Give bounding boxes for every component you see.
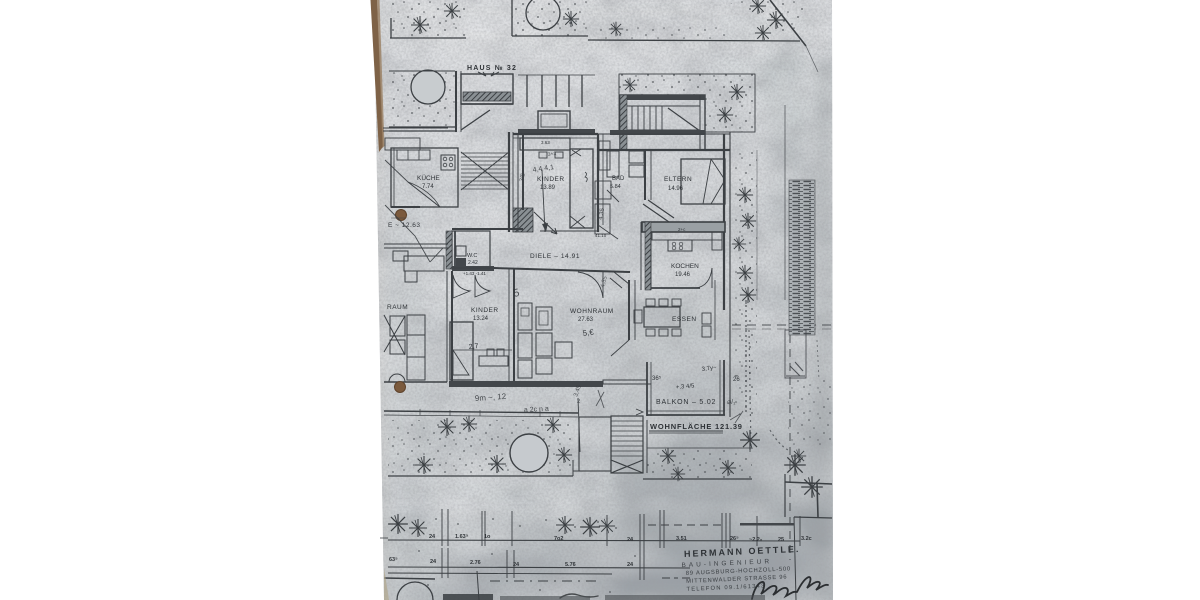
svg-text:BAD: BAD <box>612 176 625 182</box>
svg-text:ESSEN: ESSEN <box>672 316 697 323</box>
svg-text:24: 24 <box>429 534 436 540</box>
svg-text:KINDER: KINDER <box>471 307 499 314</box>
svg-text:25: 25 <box>778 537 784 543</box>
svg-text:~2.2₀: ~2.2₀ <box>749 537 763 543</box>
svg-text:27.63: 27.63 <box>578 317 594 323</box>
svg-text:2̅6: 2̅6 <box>733 376 740 383</box>
svg-text:3.63: 3.63 <box>541 140 550 145</box>
svg-text:24: 24 <box>627 562 634 568</box>
svg-text:1o: 1o <box>484 534 491 540</box>
svg-text:5,€: 5,€ <box>582 327 595 338</box>
svg-text:2,7: 2,7 <box>468 343 479 351</box>
svg-text:WOHNFLÄCHE 121.39: WOHNFLÄCHE 121.39 <box>650 422 743 431</box>
svg-text:HAUS № 32: HAUS № 32 <box>467 64 517 72</box>
svg-text:KINDER: KINDER <box>537 176 565 183</box>
svg-text:41.10: 41.10 <box>595 233 607 238</box>
svg-text:2.42: 2.42 <box>468 260 478 266</box>
svg-text:5.76: 5.76 <box>565 562 576 568</box>
svg-text:KOCHEN: KOCHEN <box>671 263 699 270</box>
svg-text:36⁵: 36⁵ <box>652 375 662 382</box>
svg-text:RAUM: RAUM <box>387 304 408 311</box>
svg-text:⌀/₁: ⌀/₁ <box>727 399 736 406</box>
svg-text:24: 24 <box>513 562 520 568</box>
svg-text:5.84: 5.84 <box>610 184 621 190</box>
svg-text:ELTERN: ELTERN <box>664 176 692 183</box>
svg-text:7.74: 7.74 <box>422 184 434 190</box>
svg-text:63⁵: 63⁵ <box>389 557 398 563</box>
svg-text:13.24: 13.24 <box>473 316 489 322</box>
svg-text:KÜCHE: KÜCHE <box>417 174 440 182</box>
svg-text:+1.43 -1.41: +1.43 -1.41 <box>463 271 486 276</box>
svg-text:W.C: W.C <box>467 253 477 259</box>
svg-text:24: 24 <box>627 537 634 543</box>
svg-text:DIELE – 14.91: DIELE – 14.91 <box>530 253 580 260</box>
svg-text:2.76: 2.76 <box>470 560 481 566</box>
svg-text:2+c: 2+c <box>678 227 686 232</box>
svg-text:7o2: 7o2 <box>554 536 563 542</box>
svg-text:a 2c n a: a 2c n a <box>524 406 549 414</box>
svg-text:19.46: 19.46 <box>675 272 691 278</box>
svg-text:3.51: 3.51 <box>676 536 687 542</box>
svg-text:BALKON – 5.02: BALKON – 5.02 <box>656 399 716 406</box>
svg-text:26⁵: 26⁵ <box>730 536 739 542</box>
svg-text:3.2c: 3.2c <box>801 536 812 542</box>
svg-text:24: 24 <box>430 559 437 565</box>
svg-text:13.89: 13.89 <box>540 185 556 191</box>
svg-text:1.63⁵: 1.63⁵ <box>455 534 469 540</box>
svg-text:WOHNRAUM: WOHNRAUM <box>570 308 614 315</box>
svg-text:14.96: 14.96 <box>668 186 684 192</box>
